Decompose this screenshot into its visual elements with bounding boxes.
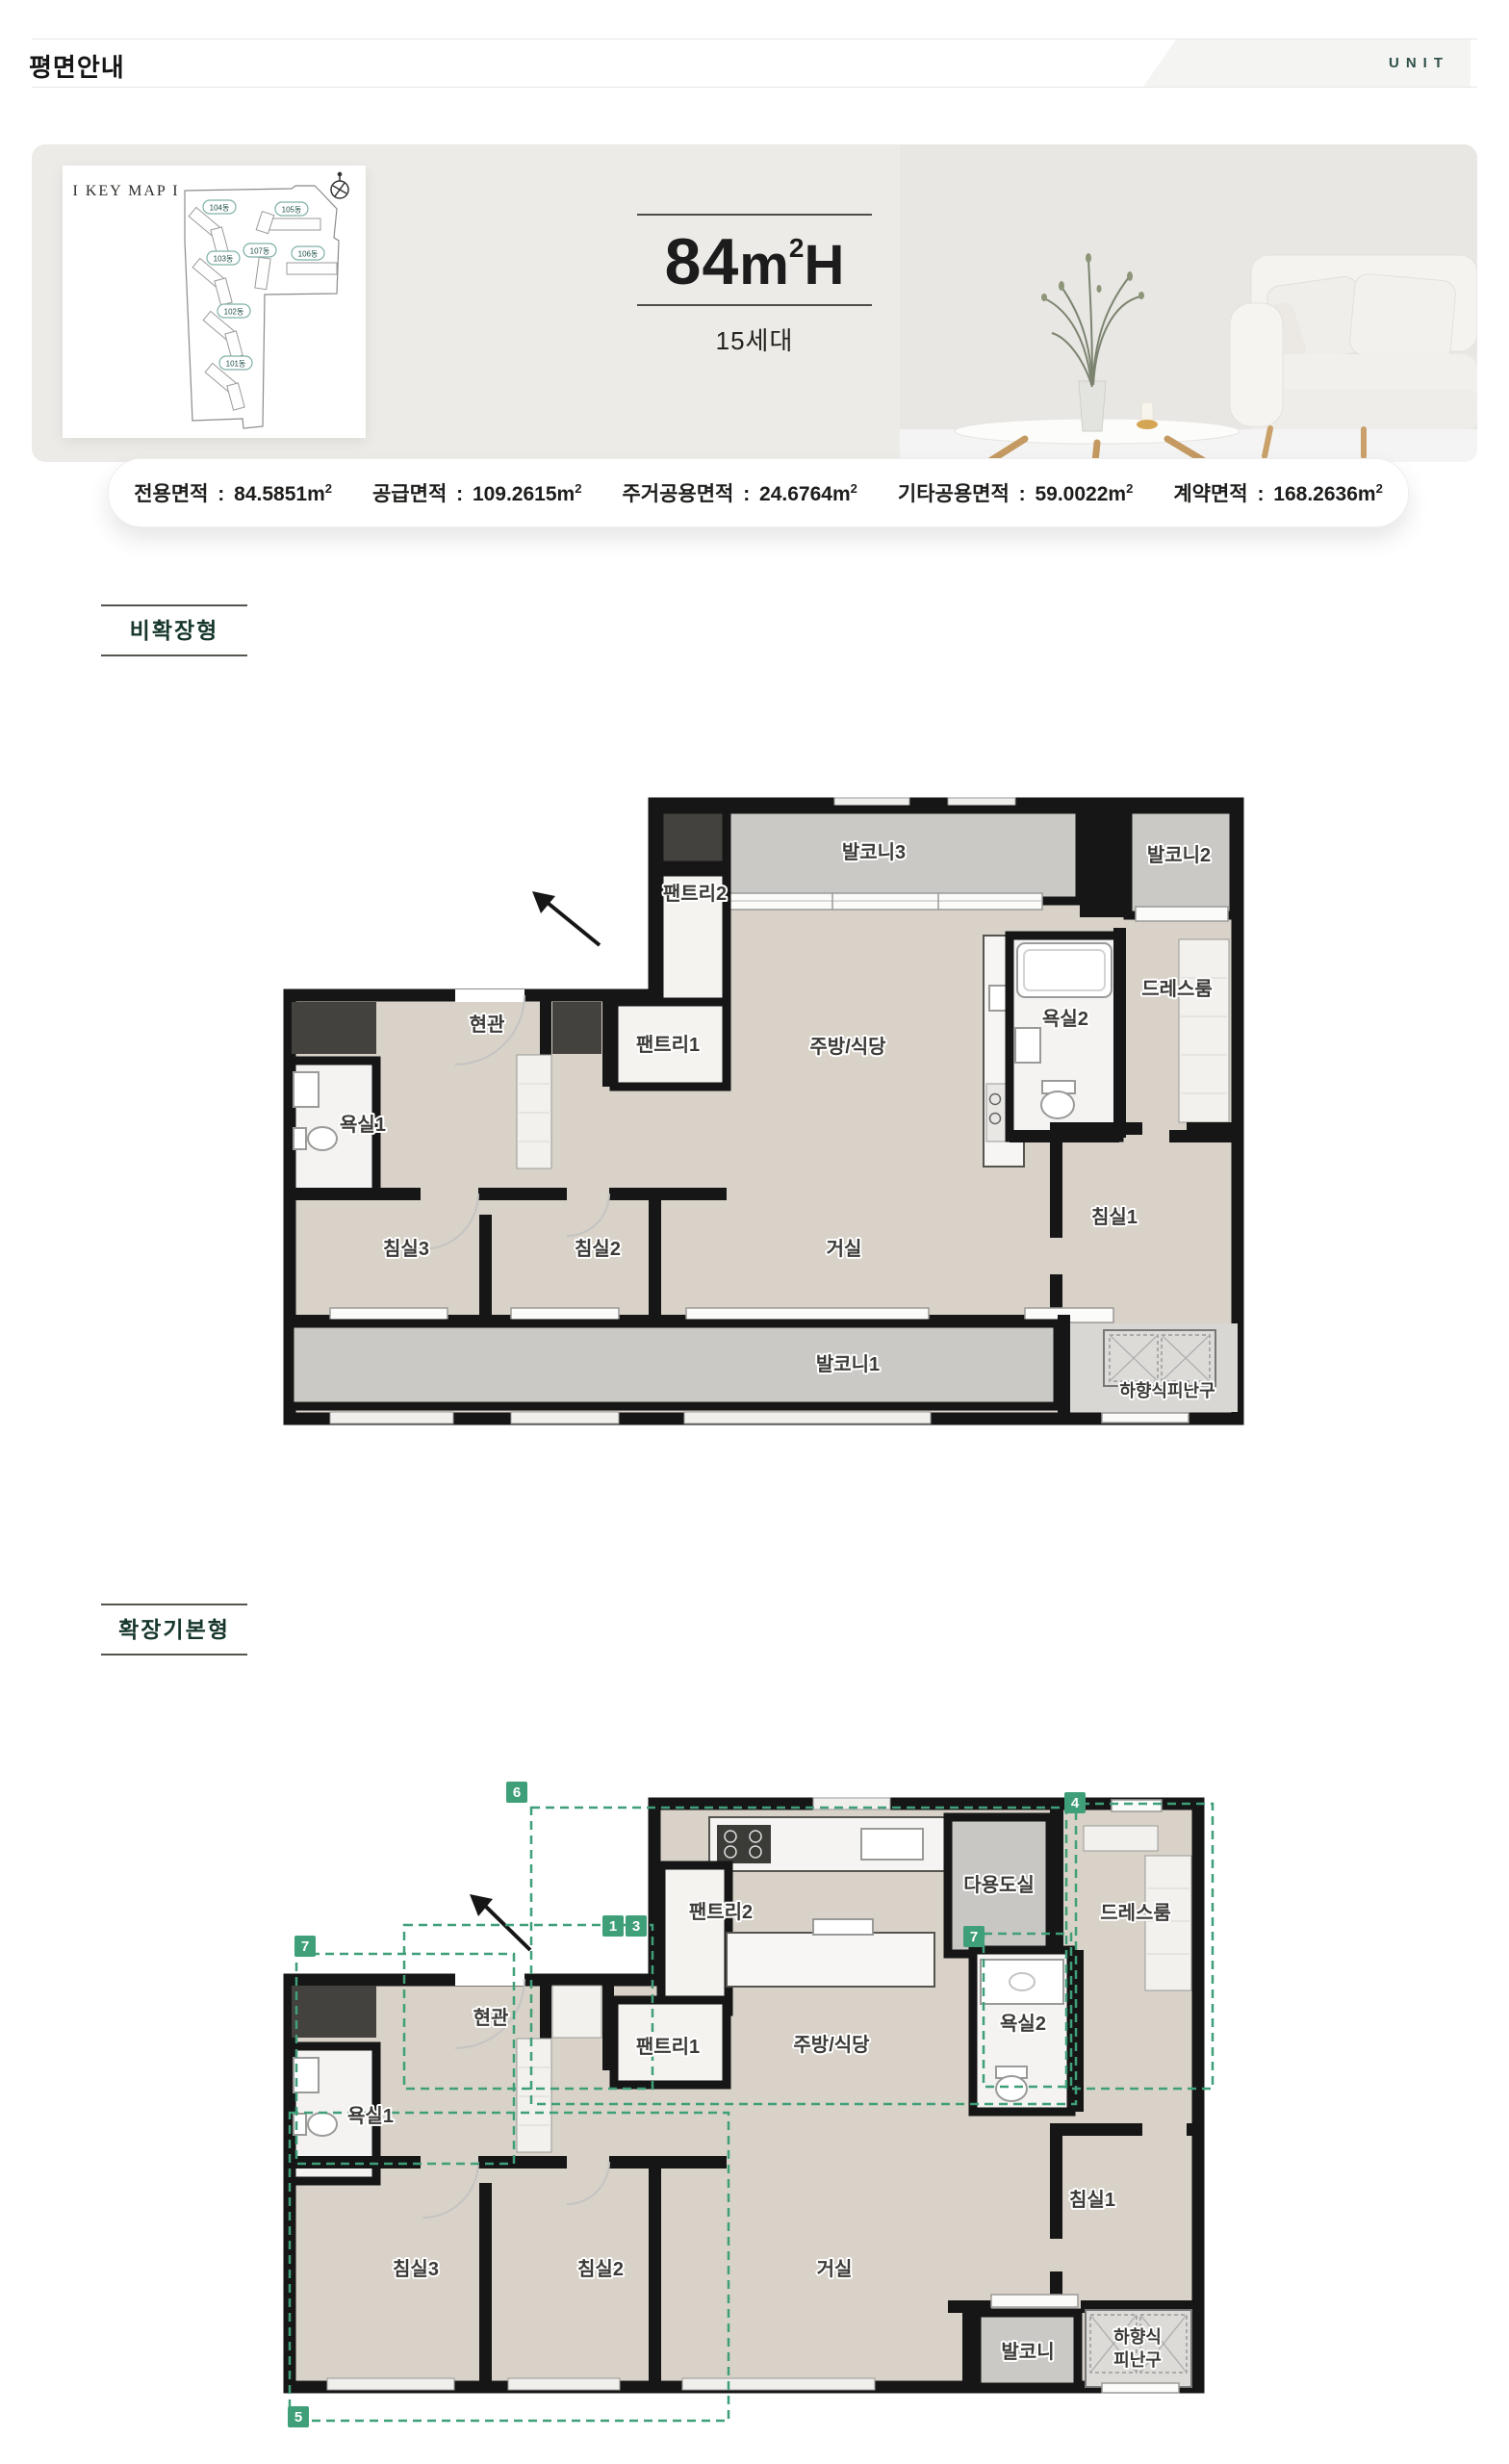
shoe-closet <box>517 2039 551 2152</box>
wall-living-bedroom1 <box>1050 1122 1062 1238</box>
label-balcony2: 발코니2 <box>1147 844 1211 866</box>
section-label-non-expanded: 비확장형 <box>101 604 247 656</box>
svg-text:7: 7 <box>301 1938 309 1955</box>
svg-text:7: 7 <box>970 1929 978 1945</box>
section-label-expanded: 확장기본형 <box>101 1604 247 1655</box>
svg-text:4: 4 <box>1071 1795 1080 1811</box>
entry-direction-arrow <box>532 891 600 945</box>
keymap-title: I KEY MAP I <box>72 183 179 199</box>
svg-text:101동: 101동 <box>226 360 246 369</box>
closet-block <box>659 809 727 865</box>
wall-between-balconies <box>1080 804 1128 917</box>
label-kitchen: 주방/식당 <box>793 2034 870 2056</box>
label-entry: 현관 <box>473 2007 509 2029</box>
label-bedroom2: 침실2 <box>577 2258 624 2280</box>
compass-icon <box>331 172 348 198</box>
area-info-bar: 전용면적 : 84.5851m2 공급면적 : 109.2615m2 주거공용면… <box>108 458 1409 527</box>
floor-plan-page: 평면안내 UNIT <box>0 0 1509 2464</box>
wall-bedroom2-living <box>649 1188 661 1322</box>
unit-number: 84 <box>665 225 740 298</box>
wall-dressroom <box>1113 928 1126 1138</box>
svg-text:1: 1 <box>609 1918 617 1935</box>
label-pantry1: 팬트리1 <box>636 2036 700 2058</box>
label-utility: 다용도실 <box>963 1874 1035 1896</box>
title-rule-top <box>637 214 872 216</box>
header-corner-panel: UNIT <box>1143 39 1471 87</box>
area-item-shared-residential: 주거공용면적 : 24.6764m2 <box>622 478 857 507</box>
label-pantry2: 팬트리2 <box>689 1901 753 1923</box>
svg-text:107동: 107동 <box>250 247 270 256</box>
label-bedroom3: 침실3 <box>393 2258 439 2280</box>
label-bath2: 욕실2 <box>1000 2013 1046 2035</box>
keymap-card: I KEY MAP I 104동 <box>63 166 366 438</box>
header-top-divider <box>32 38 1477 39</box>
wall-bedroom3-2 <box>479 1215 492 1322</box>
area-item-shared-other: 기타공용면적 : 59.0022m2 <box>898 478 1133 507</box>
sofa <box>1230 255 1477 456</box>
room-balcony1 <box>290 1323 1058 1406</box>
keymap-building-102: 102동 <box>203 304 250 358</box>
keymap-building-105: 105동 <box>256 202 320 234</box>
floor-plan-non-expanded: 발코니3 발코니2 팬트리2 현관 팬트리1 주방/식당 욕실2 드레스룸 욕실… <box>274 795 1246 1425</box>
svg-text:102동: 102동 <box>224 308 244 317</box>
wall-seg <box>1187 1122 1239 1135</box>
label-escape-hatch: 하향식피난구 <box>1119 1381 1215 1400</box>
unit-measure: m <box>739 234 789 296</box>
keymap-building-101: 101동 <box>205 356 252 410</box>
label-bath1: 욕실1 <box>340 1114 386 1136</box>
title-rule-bottom <box>637 304 872 306</box>
closet-block <box>552 1002 601 1054</box>
svg-text:6: 6 <box>513 1784 521 1801</box>
badge-6: 6 <box>506 1782 527 1803</box>
keymap-building-103: 103동 <box>192 251 240 305</box>
label-balcony: 발코니 <box>1001 2341 1054 2363</box>
svg-text:5: 5 <box>294 2409 302 2425</box>
header-corner-label: UNIT <box>1389 55 1449 71</box>
label-balcony3: 발코니3 <box>842 841 906 863</box>
escape-hatch-box <box>1086 2310 1191 2387</box>
label-escape-hatch-line1: 하향식 <box>1113 2327 1162 2347</box>
label-dressroom: 드레스룸 <box>1100 1902 1171 1924</box>
page-title: 평면안내 <box>29 48 125 84</box>
floor-plan-expanded: 6 4 1 3 7 7 5 팬트리2 다용도실 드레스룸 현관 팬트리1 주방/… <box>274 1781 1246 2454</box>
label-dressroom: 드레스룸 <box>1141 978 1213 1000</box>
area-item-supply: 공급면적 : 109.2615m2 <box>372 478 581 507</box>
unit-measure-sup: 2 <box>789 233 805 263</box>
keymap-building-107: 107동 <box>243 244 276 290</box>
room-pantry2 <box>661 1865 729 2012</box>
wall-seg <box>1050 1122 1142 1135</box>
closet-block <box>552 1986 601 2038</box>
area-item-exclusive: 전용면적 : 84.5851m2 <box>134 478 332 507</box>
area-item-contract: 계약면적 : 168.2636m2 <box>1173 478 1382 507</box>
wall-seg <box>1058 1315 1070 1419</box>
badge-1: 1 <box>602 1915 624 1937</box>
wall-seg <box>1187 2123 1198 2136</box>
label-pantry1: 팬트리1 <box>636 1034 700 1056</box>
label-escape-hatch-line2: 피난구 <box>1113 2350 1162 2370</box>
keymap-building-104: 104동 <box>189 200 236 254</box>
keymap-building-106: 106동 <box>287 246 337 274</box>
svg-text:3: 3 <box>632 1918 640 1935</box>
label-balcony1: 발코니1 <box>816 1353 880 1375</box>
shoe-closet <box>517 1055 551 1168</box>
hero-banner: I KEY MAP I 104동 <box>32 144 1477 462</box>
unit-type-title: 84m2H <box>629 229 880 295</box>
unit-title-block: 84m2H 15세대 <box>629 214 880 357</box>
label-living: 거실 <box>817 2258 853 2280</box>
dressroom-closet <box>1179 939 1229 1122</box>
wall-seg <box>1050 2123 1142 2136</box>
badge-4: 4 <box>1064 1792 1086 1813</box>
closet-block <box>292 1002 376 1054</box>
svg-text:105동: 105동 <box>282 206 302 215</box>
svg-text:103동: 103동 <box>214 255 234 264</box>
label-pantry2: 팬트리2 <box>663 883 727 905</box>
svg-text:106동: 106동 <box>298 250 319 259</box>
wall-living-bedroom1 <box>1050 2123 1062 2239</box>
label-bedroom1: 침실1 <box>1091 1206 1138 1228</box>
label-bath1: 욕실1 <box>347 2105 394 2127</box>
badge-5: 5 <box>288 2406 309 2427</box>
badge-7b: 7 <box>963 1926 985 1947</box>
hero-photo <box>900 144 1477 462</box>
closet-block <box>292 1986 376 2038</box>
label-bath2: 욕실2 <box>1042 1008 1088 1030</box>
header-bottom-divider <box>32 87 1477 88</box>
escape-hatch-box <box>1104 1330 1215 1386</box>
households-count: 15세대 <box>629 321 880 357</box>
svg-text:104동: 104동 <box>210 204 230 213</box>
badge-7a: 7 <box>294 1936 316 1957</box>
badge-3: 3 <box>626 1915 647 1937</box>
wall-bedroom2-living <box>649 2156 661 2387</box>
wall-bedroom3-2 <box>479 2183 492 2387</box>
label-living: 거실 <box>827 1238 862 1260</box>
label-bedroom3: 침실3 <box>383 1238 429 1260</box>
label-bedroom1: 침실1 <box>1069 2189 1115 2211</box>
entry-direction-arrow <box>470 1894 530 1950</box>
label-bedroom2: 침실2 <box>575 1238 621 1260</box>
label-entry: 현관 <box>470 1014 505 1036</box>
unit-suffix: H <box>804 234 844 296</box>
label-kitchen: 주방/식당 <box>809 1036 886 1058</box>
